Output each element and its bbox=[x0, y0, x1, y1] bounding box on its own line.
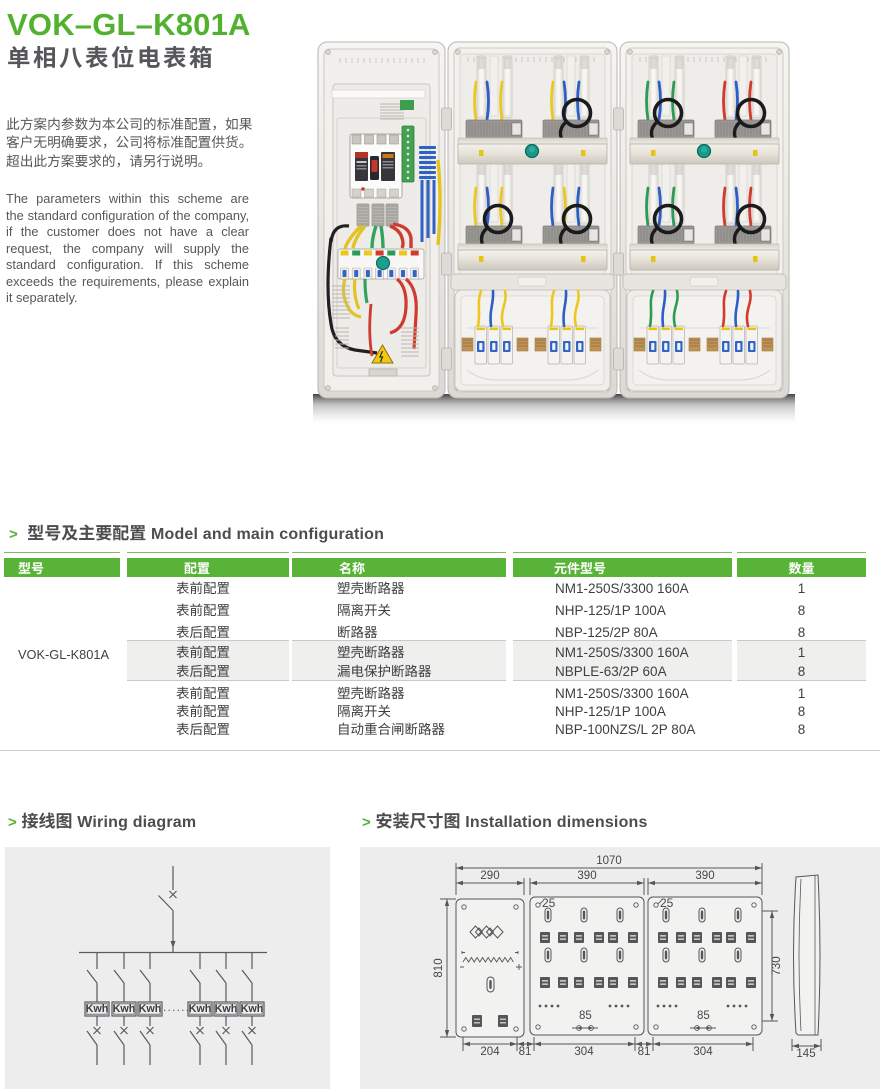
svg-text:Kwh: Kwh bbox=[215, 1003, 238, 1015]
svg-text:390: 390 bbox=[577, 870, 596, 882]
svg-text:81: 81 bbox=[519, 1046, 532, 1058]
svg-text:85: 85 bbox=[579, 1010, 592, 1022]
svg-text:145: 145 bbox=[796, 1048, 815, 1060]
svg-text:290: 290 bbox=[480, 870, 499, 882]
svg-text:85: 85 bbox=[697, 1010, 710, 1022]
svg-text:25: 25 bbox=[660, 896, 674, 910]
svg-text:Kwh: Kwh bbox=[113, 1003, 136, 1015]
svg-text:......: ...... bbox=[163, 1000, 190, 1014]
svg-text:Kwh: Kwh bbox=[241, 1003, 264, 1015]
svg-text:204: 204 bbox=[480, 1046, 500, 1058]
svg-text:304: 304 bbox=[693, 1046, 713, 1058]
svg-text:81: 81 bbox=[638, 1046, 651, 1058]
svg-text:Kwh: Kwh bbox=[189, 1003, 212, 1015]
svg-text:810: 810 bbox=[433, 958, 445, 977]
svg-text:304: 304 bbox=[574, 1046, 594, 1058]
svg-text:Kwh: Kwh bbox=[139, 1003, 162, 1015]
svg-text:25: 25 bbox=[542, 896, 556, 910]
svg-text:1070: 1070 bbox=[596, 855, 622, 867]
svg-text:Kwh: Kwh bbox=[86, 1003, 109, 1015]
svg-text:390: 390 bbox=[695, 870, 714, 882]
svg-text:730: 730 bbox=[771, 956, 783, 975]
